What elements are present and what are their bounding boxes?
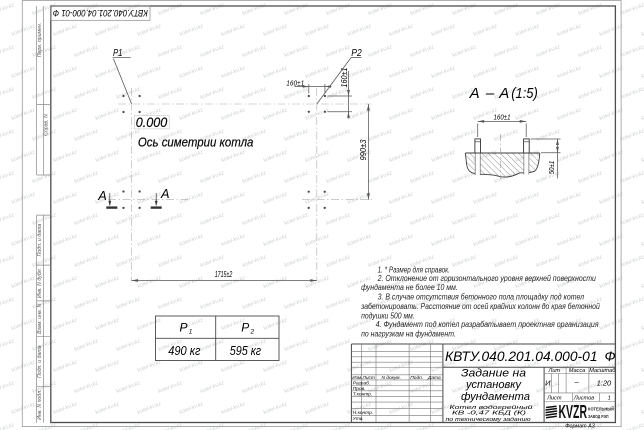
svg-text:P: P [180, 321, 188, 335]
svg-text:Справ. N: Справ. N [44, 114, 50, 136]
svg-text:kotel-kv.kz: kotel-kv.kz [620, 422, 644, 430]
svg-text:kotel-kv.kz: kotel-kv.kz [557, 149, 583, 164]
svg-text:kotel-kv.kz: kotel-kv.kz [599, 149, 625, 164]
svg-text:kotel-kv.kz: kotel-kv.kz [95, 275, 121, 290]
svg-text:kotel-kv.kz: kotel-kv.kz [53, 317, 79, 332]
svg-text:–: – [574, 378, 580, 387]
svg-text:Лит: Лит [547, 368, 560, 374]
svg-text:kotel-kv.kz: kotel-kv.kz [53, 233, 79, 248]
svg-text:kotel-kv.kz: kotel-kv.kz [536, 212, 562, 227]
svg-text:И: И [545, 378, 551, 387]
svg-text:kotel-kv.kz: kotel-kv.kz [641, 233, 644, 248]
svg-text:kotel-kv.kz: kotel-kv.kz [557, 233, 583, 248]
svg-text:kotel-kv.kz: kotel-kv.kz [599, 275, 625, 290]
svg-text:kotel-kv.kz: kotel-kv.kz [200, 338, 226, 353]
svg-text:kotel-kv.kz: kotel-kv.kz [158, 380, 184, 395]
svg-text:kotel-kv.kz: kotel-kv.kz [242, 422, 268, 430]
svg-text:kotel-kv.kz: kotel-kv.kz [431, 233, 457, 248]
svg-text:kotel-kv.kz: kotel-kv.kz [284, 296, 310, 311]
svg-text:kotel-kv.kz: kotel-kv.kz [641, 359, 644, 374]
svg-text:kotel-kv.kz: kotel-kv.kz [389, 65, 415, 80]
svg-text:kotel-kv.kz: kotel-kv.kz [95, 401, 121, 416]
svg-text:kotel-kv.kz: kotel-kv.kz [11, 275, 37, 290]
svg-text:kotel-kv.kz: kotel-kv.kz [410, 86, 436, 101]
svg-text:kotel-kv.kz: kotel-kv.kz [179, 275, 205, 290]
svg-text:kotel-kv.kz: kotel-kv.kz [284, 2, 310, 17]
svg-text:kotel-kv.kz: kotel-kv.kz [53, 107, 79, 122]
svg-text:kotel-kv.kz: kotel-kv.kz [620, 380, 644, 395]
svg-text:kotel-kv.kz: kotel-kv.kz [620, 170, 644, 185]
svg-text:kotel-kv.kz: kotel-kv.kz [11, 65, 37, 80]
svg-text:kotel-kv.kz: kotel-kv.kz [494, 212, 520, 227]
svg-text:kotel-kv.kz: kotel-kv.kz [326, 380, 352, 395]
svg-text:kotel-kv.kz: kotel-kv.kz [242, 86, 268, 101]
svg-text:kotel-kv.kz: kotel-kv.kz [368, 2, 394, 17]
svg-text:kotel-kv.kz: kotel-kv.kz [116, 170, 142, 185]
svg-text:kotel-kv.kz: kotel-kv.kz [578, 254, 604, 269]
svg-text:kotel-kv.kz: kotel-kv.kz [305, 23, 331, 38]
svg-text:kotel-kv.kz: kotel-kv.kz [137, 233, 163, 248]
svg-text:kotel-kv.kz: kotel-kv.kz [116, 338, 142, 353]
svg-text:160±1: 160±1 [494, 114, 511, 121]
svg-text:Взам. инв. N: Взам. инв. N [37, 303, 43, 333]
svg-text:kotel-kv.kz: kotel-kv.kz [179, 107, 205, 122]
svg-text:(1:5): (1:5) [511, 85, 538, 102]
svg-text:kotel-kv.kz: kotel-kv.kz [32, 296, 58, 311]
svg-text:kotel-kv.kz: kotel-kv.kz [473, 191, 499, 206]
svg-text:kotel-kv.kz: kotel-kv.kz [431, 191, 457, 206]
svg-text:kotel-kv.kz: kotel-kv.kz [284, 422, 310, 430]
svg-text:kotel-kv.kz: kotel-kv.kz [389, 23, 415, 38]
svg-text:kotel-kv.kz: kotel-kv.kz [137, 359, 163, 374]
svg-text:kotel-kv.kz: kotel-kv.kz [95, 107, 121, 122]
svg-text:kotel-kv.kz: kotel-kv.kz [368, 128, 394, 143]
svg-text:kotel-kv.kz: kotel-kv.kz [200, 296, 226, 311]
svg-text:kotel-kv.kz: kotel-kv.kz [200, 170, 226, 185]
svg-text:kotel-kv.kz: kotel-kv.kz [116, 212, 142, 227]
svg-text:kotel-kv.kz: kotel-kv.kz [116, 254, 142, 269]
svg-text:kotel-kv.kz: kotel-kv.kz [53, 359, 79, 374]
svg-text:kotel-kv.kz: kotel-kv.kz [641, 191, 644, 206]
svg-text:kotel-kv.kz: kotel-kv.kz [599, 107, 625, 122]
svg-text:kotel-kv.kz: kotel-kv.kz [368, 170, 394, 185]
svg-text:фундамента не более 10 мм.: фундамента не более 10 мм. [361, 283, 458, 292]
svg-text:kotel-kv.kz: kotel-kv.kz [200, 2, 226, 17]
svg-text:kotel-kv.kz: kotel-kv.kz [473, 233, 499, 248]
svg-text:kotel-kv.kz: kotel-kv.kz [305, 65, 331, 80]
svg-text:A: A [160, 186, 169, 201]
svg-text:kotel-kv.kz: kotel-kv.kz [284, 380, 310, 395]
svg-text:kotel-kv.kz: kotel-kv.kz [242, 296, 268, 311]
svg-text:kotel-kv.kz: kotel-kv.kz [74, 170, 100, 185]
svg-text:kotel-kv.kz: kotel-kv.kz [452, 44, 478, 59]
svg-text:kotel-kv.kz: kotel-kv.kz [179, 23, 205, 38]
svg-text:kotel-kv.kz: kotel-kv.kz [410, 128, 436, 143]
svg-text:kotel-kv.kz: kotel-kv.kz [263, 149, 289, 164]
svg-text:kotel-kv.kz: kotel-kv.kz [347, 23, 373, 38]
svg-text:kotel-kv.kz: kotel-kv.kz [326, 212, 352, 227]
svg-text:kotel-kv.kz: kotel-kv.kz [452, 2, 478, 17]
svg-text:Изм.Лист: Изм.Лист [352, 375, 375, 381]
svg-text:kotel-kv.kz: kotel-kv.kz [410, 44, 436, 59]
svg-text:kotel-kv.kz: kotel-kv.kz [305, 317, 331, 332]
svg-text:kotel-kv.kz: kotel-kv.kz [74, 212, 100, 227]
svg-text:kotel-kv.kz: kotel-kv.kz [494, 44, 520, 59]
svg-text:kotel-kv.kz: kotel-kv.kz [347, 359, 373, 374]
svg-text:kotel-kv.kz: kotel-kv.kz [452, 254, 478, 269]
svg-text:kotel-kv.kz: kotel-kv.kz [284, 170, 310, 185]
svg-text:kotel-kv.kz: kotel-kv.kz [620, 128, 644, 143]
svg-text:kotel-kv.kz: kotel-kv.kz [200, 86, 226, 101]
svg-text:kotel-kv.kz: kotel-kv.kz [74, 296, 100, 311]
svg-text:kotel-kv.kz: kotel-kv.kz [0, 86, 15, 101]
svg-text:kotel-kv.kz: kotel-kv.kz [536, 422, 562, 430]
svg-text:kotel-kv.kz: kotel-kv.kz [263, 23, 289, 38]
svg-text:kotel-kv.kz: kotel-kv.kz [32, 254, 58, 269]
svg-text:kotel-kv.kz: kotel-kv.kz [536, 254, 562, 269]
svg-text:–: – [485, 85, 495, 102]
svg-text:kotel-kv.kz: kotel-kv.kz [326, 296, 352, 311]
svg-text:kotel-kv.kz: kotel-kv.kz [221, 23, 247, 38]
svg-text:kotel-kv.kz: kotel-kv.kz [410, 212, 436, 227]
svg-text:160±1: 160±1 [286, 81, 304, 88]
svg-text:kotel-kv.kz: kotel-kv.kz [557, 107, 583, 122]
svg-text:kotel-kv.kz: kotel-kv.kz [494, 128, 520, 143]
svg-text:kotel-kv.kz: kotel-kv.kz [11, 359, 37, 374]
svg-text:kotel-kv.kz: kotel-kv.kz [599, 23, 625, 38]
svg-text:1: 1 [608, 395, 611, 401]
svg-text:kotel-kv.kz: kotel-kv.kz [221, 401, 247, 416]
svg-text:kotel-kv.kz: kotel-kv.kz [578, 86, 604, 101]
svg-text:КВТУ.040.201.04.000-01 Ф: КВТУ.040.201.04.000-01 Ф [53, 8, 148, 18]
svg-text:N докум.: N докум. [382, 375, 401, 381]
svg-text:kotel-kv.kz: kotel-kv.kz [557, 23, 583, 38]
svg-text:Т.контр.: Т.контр. [353, 392, 372, 398]
svg-text:Подп. и дата: Подп. и дата [37, 345, 43, 378]
svg-text:kotel-kv.kz: kotel-kv.kz [0, 338, 15, 353]
svg-text:kotel-kv.kz: kotel-kv.kz [284, 86, 310, 101]
svg-text:kotel-kv.kz: kotel-kv.kz [263, 317, 289, 332]
svg-text:kotel-kv.kz: kotel-kv.kz [74, 128, 100, 143]
svg-text:kotel-kv.kz: kotel-kv.kz [641, 149, 644, 164]
svg-text:kotel-kv.kz: kotel-kv.kz [200, 254, 226, 269]
svg-text:kotel-kv.kz: kotel-kv.kz [326, 128, 352, 143]
svg-text:kotel-kv.kz: kotel-kv.kz [242, 254, 268, 269]
svg-text:Лист: Лист [546, 395, 562, 401]
svg-text:kotel-kv.kz: kotel-kv.kz [431, 149, 457, 164]
svg-text:kotel-kv.kz: kotel-kv.kz [158, 170, 184, 185]
svg-text:kotel-kv.kz: kotel-kv.kz [452, 212, 478, 227]
svg-text:KVZR: KVZR [559, 402, 588, 422]
svg-text:kotel-kv.kz: kotel-kv.kz [137, 401, 163, 416]
svg-text:1715±2: 1715±2 [215, 270, 233, 279]
svg-text:kotel-kv.kz: kotel-kv.kz [368, 422, 394, 430]
svg-text:kotel-kv.kz: kotel-kv.kz [599, 233, 625, 248]
svg-text:kotel-kv.kz: kotel-kv.kz [263, 191, 289, 206]
svg-text:Перв. примен.: Перв. примен. [37, 23, 43, 57]
svg-text:kotel-kv.kz: kotel-kv.kz [326, 338, 352, 353]
svg-text:kotel-kv.kz: kotel-kv.kz [32, 86, 58, 101]
svg-text:kotel-kv.kz: kotel-kv.kz [263, 359, 289, 374]
svg-text:kotel-kv.kz: kotel-kv.kz [32, 170, 58, 185]
svg-text:kotel-kv.kz: kotel-kv.kz [0, 212, 15, 227]
svg-text:kotel-kv.kz: kotel-kv.kz [305, 107, 331, 122]
svg-text:забетонировать. Расстояние от: забетонировать. Расстояние от осей крайн… [360, 302, 600, 311]
svg-text:kotel-kv.kz: kotel-kv.kz [410, 422, 436, 430]
svg-text:1:20: 1:20 [597, 378, 612, 387]
svg-text:595 кг: 595 кг [230, 343, 262, 358]
svg-text:kotel-kv.kz: kotel-kv.kz [599, 191, 625, 206]
svg-text:kotel-kv.kz: kotel-kv.kz [53, 275, 79, 290]
svg-text:Н.контр.: Н.контр. [353, 410, 373, 416]
svg-text:kotel-kv.kz: kotel-kv.kz [32, 212, 58, 227]
svg-text:kotel-kv.kz: kotel-kv.kz [368, 44, 394, 59]
svg-text:kotel-kv.kz: kotel-kv.kz [53, 191, 79, 206]
svg-text:kotel-kv.kz: kotel-kv.kz [221, 149, 247, 164]
svg-text:по нагрузкам на фундамент.: по нагрузкам на фундамент. [361, 329, 456, 338]
svg-text:kotel-kv.kz: kotel-kv.kz [578, 44, 604, 59]
svg-text:kotel-kv.kz: kotel-kv.kz [53, 23, 79, 38]
svg-text:kotel-kv.kz: kotel-kv.kz [158, 296, 184, 311]
svg-text:Инв. N дубл.: Инв. N дубл. [37, 268, 43, 298]
svg-text:50±1: 50±1 [549, 161, 556, 175]
svg-text:P2: P2 [351, 48, 362, 59]
svg-text:kotel-kv.kz: kotel-kv.kz [284, 338, 310, 353]
svg-text:kotel-kv.kz: kotel-kv.kz [368, 338, 394, 353]
svg-text:kotel-kv.kz: kotel-kv.kz [158, 254, 184, 269]
svg-text:P1: P1 [113, 48, 123, 59]
svg-text:Ось симетрии котла: Ось симетрии котла [138, 134, 254, 149]
svg-text:kotel-kv.kz: kotel-kv.kz [11, 149, 37, 164]
svg-text:kotel-kv.kz: kotel-kv.kz [284, 212, 310, 227]
svg-text:kotel-kv.kz: kotel-kv.kz [158, 212, 184, 227]
svg-text:4. Фундамент под котел разраба: 4. Фундамент под котел разрабатывает про… [376, 320, 600, 329]
svg-text:kotel-kv.kz: kotel-kv.kz [263, 275, 289, 290]
svg-text:А: А [469, 85, 480, 102]
svg-text:kotel-kv.kz: kotel-kv.kz [599, 317, 625, 332]
svg-text:kotel-kv.kz: kotel-kv.kz [137, 317, 163, 332]
svg-text:kotel-kv.kz: kotel-kv.kz [0, 128, 15, 143]
svg-text:kotel-kv.kz: kotel-kv.kz [221, 359, 247, 374]
svg-text:kotel-kv.kz: kotel-kv.kz [242, 2, 268, 17]
svg-text:kotel-kv.kz: kotel-kv.kz [200, 212, 226, 227]
svg-text:Масштаб: Масштаб [589, 368, 616, 374]
svg-text:kotel-kv.kz: kotel-kv.kz [641, 23, 644, 38]
svg-text:kotel-kv.kz: kotel-kv.kz [515, 233, 541, 248]
svg-text:kotel-kv.kz: kotel-kv.kz [74, 422, 100, 430]
svg-text:kotel-kv.kz: kotel-kv.kz [473, 23, 499, 38]
svg-text:kotel-kv.kz: kotel-kv.kz [347, 233, 373, 248]
svg-text:kotel-kv.kz: kotel-kv.kz [557, 191, 583, 206]
svg-text:kotel-kv.kz: kotel-kv.kz [578, 128, 604, 143]
svg-text:kotel-kv.kz: kotel-kv.kz [368, 86, 394, 101]
svg-text:КВТУ.040.201.04.000-01: КВТУ.040.201.04.000-01 [445, 348, 598, 364]
svg-text:Подп. и дата: Подп. и дата [37, 224, 43, 257]
svg-text:по техническому заданию: по техническому заданию [446, 417, 532, 423]
svg-text:kotel-kv.kz: kotel-kv.kz [452, 128, 478, 143]
svg-text:kotel-kv.kz: kotel-kv.kz [74, 44, 100, 59]
svg-text:kotel-kv.kz: kotel-kv.kz [305, 359, 331, 374]
svg-text:kotel-kv.kz: kotel-kv.kz [389, 233, 415, 248]
svg-text:kotel-kv.kz: kotel-kv.kz [11, 317, 37, 332]
svg-text:kotel-kv.kz: kotel-kv.kz [32, 422, 58, 430]
svg-text:КВ -0,47 КБД (К): КВ -0,47 КБД (К) [452, 411, 526, 417]
svg-text:3. В случае отсутствия бетонно: 3. В случае отсутствия бетонного пола пл… [378, 293, 585, 302]
svg-text:kotel-kv.kz: kotel-kv.kz [305, 149, 331, 164]
svg-text:P: P [241, 321, 249, 335]
svg-text:kotel-kv.kz: kotel-kv.kz [158, 2, 184, 17]
svg-text:kotel-kv.kz: kotel-kv.kz [200, 422, 226, 430]
svg-text:kotel-kv.kz: kotel-kv.kz [11, 23, 37, 38]
svg-text:kotel-kv.kz: kotel-kv.kz [11, 401, 37, 416]
svg-text:kotel-kv.kz: kotel-kv.kz [578, 170, 604, 185]
svg-text:kotel-kv.kz: kotel-kv.kz [116, 86, 142, 101]
svg-text:kotel-kv.kz: kotel-kv.kz [515, 65, 541, 80]
svg-text:kotel-kv.kz: kotel-kv.kz [158, 44, 184, 59]
svg-text:kotel-kv.kz: kotel-kv.kz [410, 170, 436, 185]
svg-text:kotel-kv.kz: kotel-kv.kz [389, 107, 415, 122]
svg-text:kotel-kv.kz: kotel-kv.kz [179, 233, 205, 248]
svg-text:kotel-kv.kz: kotel-kv.kz [95, 23, 121, 38]
svg-text:kotel-kv.kz: kotel-kv.kz [116, 380, 142, 395]
svg-text:Пров.: Пров. [353, 386, 366, 392]
svg-text:kotel-kv.kz: kotel-kv.kz [578, 2, 604, 17]
svg-text:kotel-kv.kz: kotel-kv.kz [137, 149, 163, 164]
svg-text:kotel-kv.kz: kotel-kv.kz [242, 212, 268, 227]
svg-text:kotel-kv.kz: kotel-kv.kz [305, 233, 331, 248]
svg-text:kotel-kv.kz: kotel-kv.kz [620, 44, 644, 59]
svg-text:Листов: Листов [573, 395, 594, 401]
svg-text:kotel-kv.kz: kotel-kv.kz [326, 44, 352, 59]
svg-text:990±3: 990±3 [359, 139, 368, 161]
svg-text:kotel-kv.kz: kotel-kv.kz [641, 107, 644, 122]
svg-text:kotel-kv.kz: kotel-kv.kz [53, 401, 79, 416]
svg-text:kotel-kv.kz: kotel-kv.kz [473, 65, 499, 80]
svg-text:kotel-kv.kz: kotel-kv.kz [578, 212, 604, 227]
svg-text:kotel-kv.kz: kotel-kv.kz [95, 317, 121, 332]
svg-text:kotel-kv.kz: kotel-kv.kz [641, 317, 644, 332]
svg-text:kotel-kv.kz: kotel-kv.kz [368, 212, 394, 227]
svg-text:kotel-kv.kz: kotel-kv.kz [53, 65, 79, 80]
svg-text:kotel-kv.kz: kotel-kv.kz [179, 401, 205, 416]
svg-text:kotel-kv.kz: kotel-kv.kz [179, 359, 205, 374]
svg-text:ЗАВОД РЭП: ЗАВОД РЭП [588, 414, 609, 420]
svg-text:Подп.: Подп. [410, 375, 423, 381]
svg-text:kotel-kv.kz: kotel-kv.kz [137, 23, 163, 38]
svg-text:kotel-kv.kz: kotel-kv.kz [557, 65, 583, 80]
svg-text:kotel-kv.kz: kotel-kv.kz [305, 401, 331, 416]
svg-text:Масса: Масса [569, 368, 586, 374]
svg-text:kotel-kv.kz: kotel-kv.kz [0, 296, 15, 311]
svg-text:kotel-kv.kz: kotel-kv.kz [389, 191, 415, 206]
svg-text:kotel-kv.kz: kotel-kv.kz [0, 2, 15, 17]
svg-text:2: 2 [250, 329, 255, 336]
svg-text:kotel-kv.kz: kotel-kv.kz [0, 422, 15, 430]
svg-text:kotel-kv.kz: kotel-kv.kz [116, 296, 142, 311]
svg-text:kotel-kv.kz: kotel-kv.kz [95, 233, 121, 248]
svg-text:Ф: Ф [605, 348, 616, 364]
svg-text:kotel-kv.kz: kotel-kv.kz [389, 149, 415, 164]
svg-text:Задание на: Задание на [461, 368, 526, 380]
svg-text:kotel-kv.kz: kotel-kv.kz [263, 107, 289, 122]
svg-text:kotel-kv.kz: kotel-kv.kz [641, 275, 644, 290]
svg-text:kotel-kv.kz: kotel-kv.kz [137, 191, 163, 206]
svg-text:kotel-kv.kz: kotel-kv.kz [221, 191, 247, 206]
svg-text:1: 1 [189, 329, 193, 336]
svg-text:kotel-kv.kz: kotel-kv.kz [515, 107, 541, 122]
svg-text:kotel-kv.kz: kotel-kv.kz [431, 107, 457, 122]
svg-text:0.000: 0.000 [136, 114, 168, 130]
svg-text:kotel-kv.kz: kotel-kv.kz [74, 86, 100, 101]
svg-text:kotel-kv.kz: kotel-kv.kz [347, 65, 373, 80]
svg-text:kotel-kv.kz: kotel-kv.kz [200, 380, 226, 395]
svg-text:kotel-kv.kz: kotel-kv.kz [74, 380, 100, 395]
svg-text:A: A [97, 188, 106, 203]
svg-text:kotel-kv.kz: kotel-kv.kz [221, 65, 247, 80]
svg-text:kotel-kv.kz: kotel-kv.kz [284, 128, 310, 143]
svg-text:kotel-kv.kz: kotel-kv.kz [620, 254, 644, 269]
svg-text:kotel-kv.kz: kotel-kv.kz [0, 44, 15, 59]
svg-text:kotel-kv.kz: kotel-kv.kz [32, 44, 58, 59]
svg-text:kotel-kv.kz: kotel-kv.kz [179, 191, 205, 206]
svg-text:kotel-kv.kz: kotel-kv.kz [641, 401, 644, 416]
svg-text:kotel-kv.kz: kotel-kv.kz [242, 380, 268, 395]
svg-text:kotel-kv.kz: kotel-kv.kz [326, 170, 352, 185]
svg-text:kotel-kv.kz: kotel-kv.kz [410, 380, 436, 395]
svg-text:kotel-kv.kz: kotel-kv.kz [494, 2, 520, 17]
svg-text:Инв. N подл.: Инв. N подл. [37, 389, 43, 419]
svg-text:kotel-kv.kz: kotel-kv.kz [221, 107, 247, 122]
svg-text:kotel-kv.kz: kotel-kv.kz [137, 65, 163, 80]
svg-text:kotel-kv.kz: kotel-kv.kz [305, 275, 331, 290]
svg-text:kotel-kv.kz: kotel-kv.kz [536, 44, 562, 59]
svg-text:kotel-kv.kz: kotel-kv.kz [11, 191, 37, 206]
svg-text:kotel-kv.kz: kotel-kv.kz [0, 170, 15, 185]
svg-text:kotel-kv.kz: kotel-kv.kz [95, 359, 121, 374]
svg-text:kotel-kv.kz: kotel-kv.kz [620, 2, 644, 17]
svg-text:kotel-kv.kz: kotel-kv.kz [326, 254, 352, 269]
svg-text:kotel-kv.kz: kotel-kv.kz [389, 359, 415, 374]
svg-text:А: А [498, 85, 509, 102]
svg-text:kotel-kv.kz: kotel-kv.kz [326, 422, 352, 430]
svg-text:2. Отклонение от горизонтально: 2. Отклонение от горизонтального уровня … [377, 274, 597, 283]
svg-text:kotel-kv.kz: kotel-kv.kz [53, 149, 79, 164]
svg-text:фундамента: фундамента [461, 391, 530, 403]
svg-text:kotel-kv.kz: kotel-kv.kz [620, 296, 644, 311]
svg-text:установку: установку [465, 379, 523, 391]
svg-text:kotel-kv.kz: kotel-kv.kz [158, 422, 184, 430]
svg-text:Утв.: Утв. [353, 416, 364, 422]
svg-text:Формат А3: Формат А3 [565, 424, 595, 430]
svg-text:kotel-kv.kz: kotel-kv.kz [620, 338, 644, 353]
svg-text:kotel-kv.kz: kotel-kv.kz [11, 107, 37, 122]
svg-text:kotel-kv.kz: kotel-kv.kz [242, 44, 268, 59]
svg-text:kotel-kv.kz: kotel-kv.kz [32, 380, 58, 395]
svg-text:kotel-kv.kz: kotel-kv.kz [179, 149, 205, 164]
svg-text:kotel-kv.kz: kotel-kv.kz [263, 401, 289, 416]
svg-text:kotel-kv.kz: kotel-kv.kz [263, 233, 289, 248]
svg-text:kotel-kv.kz: kotel-kv.kz [494, 254, 520, 269]
svg-text:kotel-kv.kz: kotel-kv.kz [284, 254, 310, 269]
svg-text:kotel-kv.kz: kotel-kv.kz [284, 44, 310, 59]
svg-text:kotel-kv.kz: kotel-kv.kz [221, 233, 247, 248]
svg-text:kotel-kv.kz: kotel-kv.kz [179, 65, 205, 80]
svg-text:kotel-kv.kz: kotel-kv.kz [11, 233, 37, 248]
svg-text:kotel-kv.kz: kotel-kv.kz [515, 191, 541, 206]
svg-text:kotel-kv.kz: kotel-kv.kz [641, 65, 644, 80]
svg-text:Дата: Дата [427, 375, 441, 381]
svg-text:Разраб.: Разраб. [353, 381, 370, 387]
